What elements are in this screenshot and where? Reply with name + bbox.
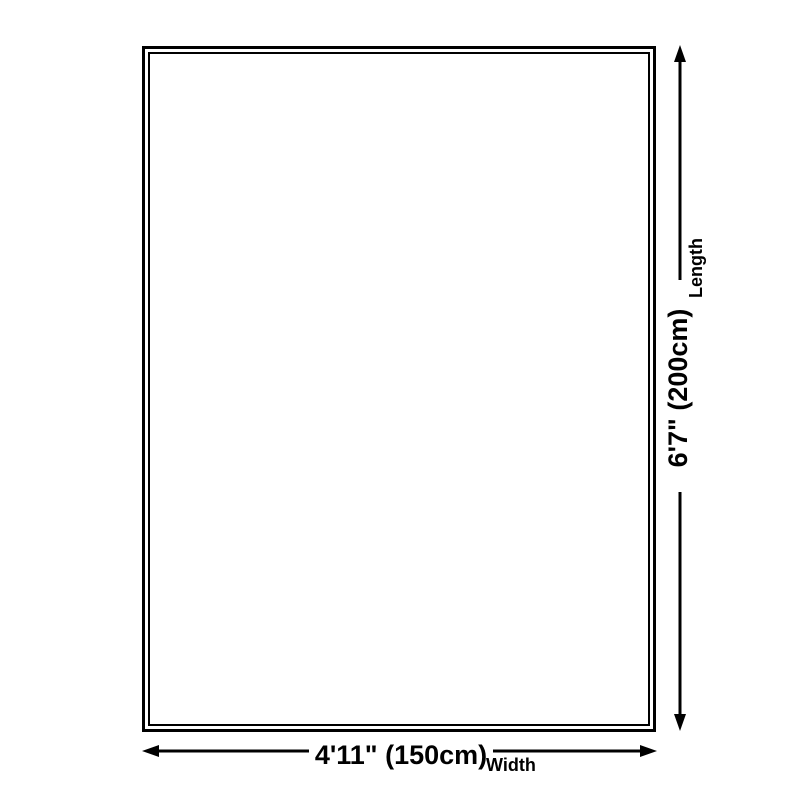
size-diagram: 6'7" (200cm) Length 4'11" (150cm) Width — [0, 0, 800, 800]
arrow-left-icon — [142, 745, 159, 757]
rug-inner-border — [148, 52, 650, 726]
rug-rectangle — [142, 46, 656, 732]
width-unit-label: Width — [486, 754, 542, 776]
length-value-label: 6'7" (200cm) — [662, 282, 694, 494]
arrow-up-icon — [674, 45, 686, 62]
arrow-down-icon — [674, 714, 686, 731]
arrow-right-icon — [640, 745, 657, 757]
width-value-label: 4'11" (150cm) — [305, 739, 497, 771]
length-unit-label: Length — [685, 223, 707, 313]
